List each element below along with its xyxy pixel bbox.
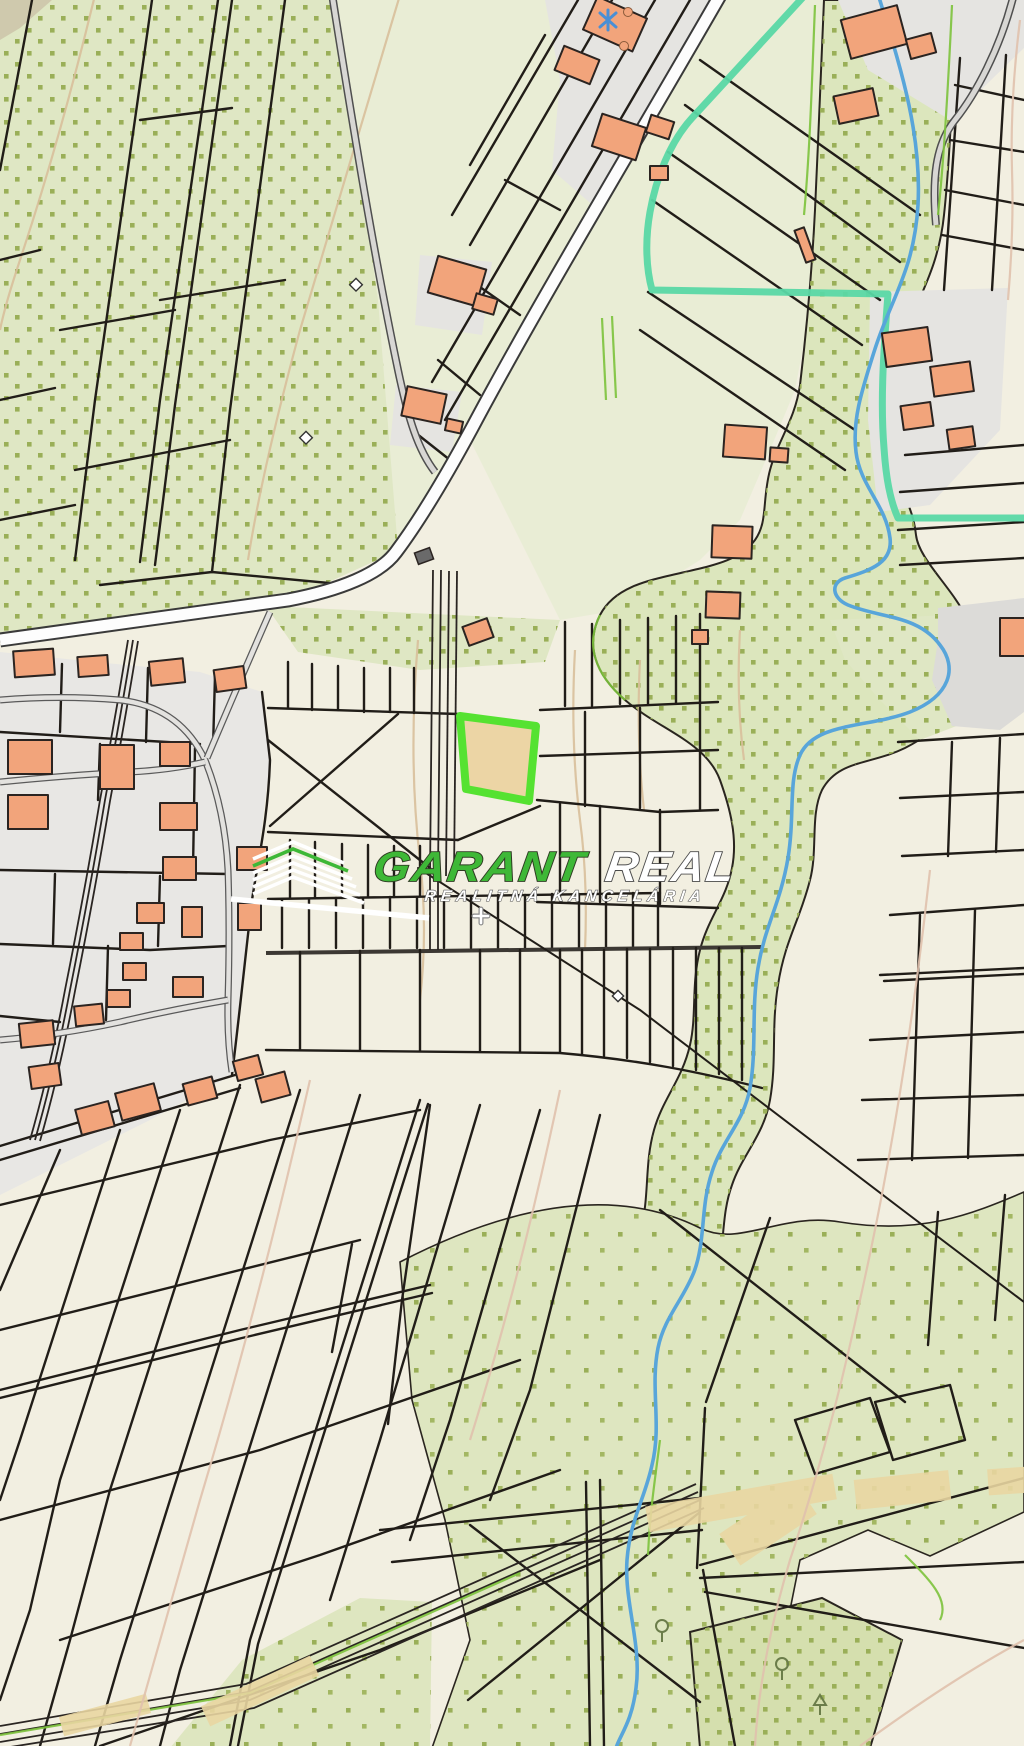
brand-primary-text: GARANT	[371, 843, 591, 890]
tree-dot-icon	[624, 8, 633, 17]
highlighted-parcel[interactable]	[460, 716, 536, 801]
brand-secondary-text: REAL	[603, 843, 740, 890]
map-canvas[interactable]: GARANT REAL REALITNÁ KANCELÁRIA	[0, 0, 1024, 1746]
map-viewport[interactable]: GARANT REAL REALITNÁ KANCELÁRIA	[0, 0, 1024, 1746]
tree-dot-icon	[620, 42, 629, 51]
